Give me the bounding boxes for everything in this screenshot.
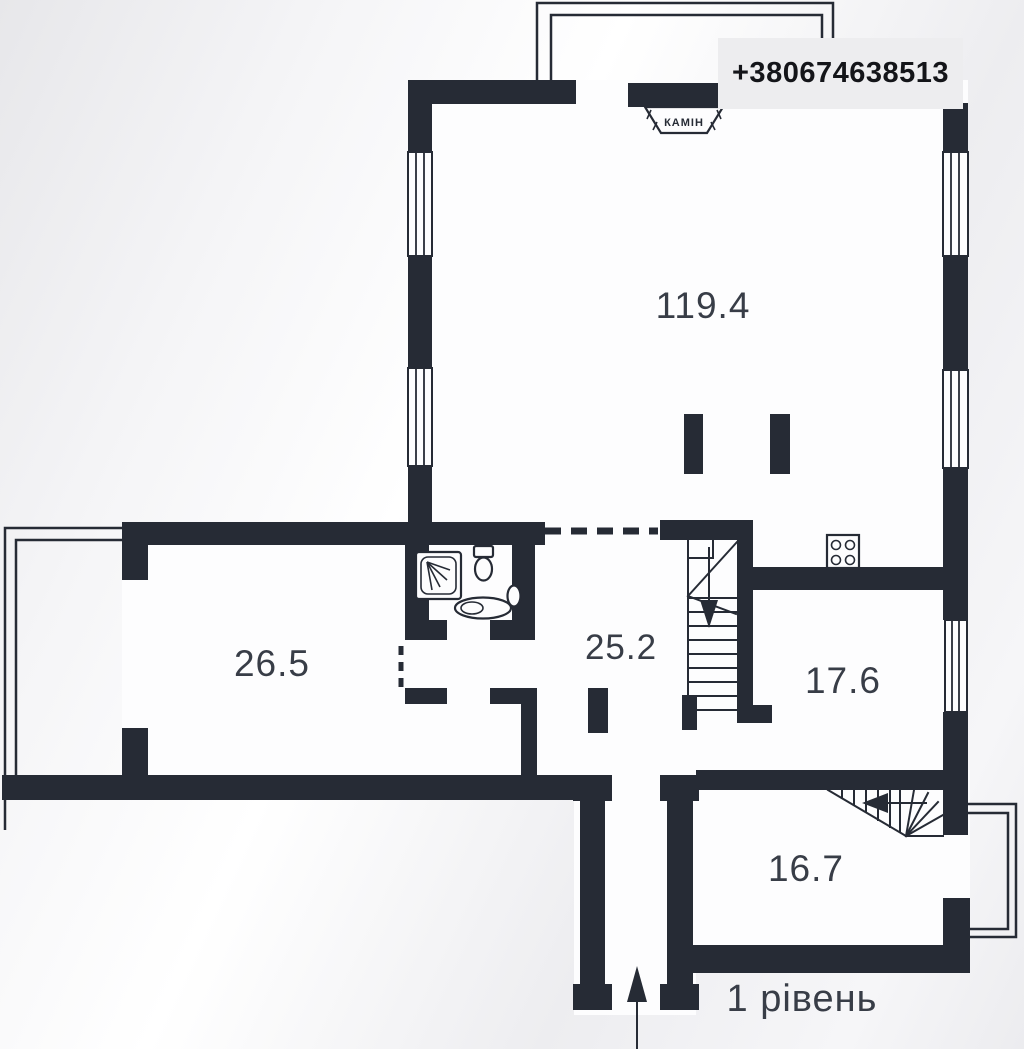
floor-plan-svg: КАМІН [0,0,1024,1049]
stove-icon [827,535,859,568]
window-symbol [408,152,432,256]
window-symbol [943,152,968,256]
toilet-icon [474,546,493,581]
sink-icon [455,598,511,619]
shower-icon [416,552,461,599]
washbasin-icon [508,586,521,607]
room-area-left-room: 26.5 [234,643,310,684]
window-symbol [945,620,967,712]
room-area-hall: 25.2 [585,628,657,667]
room-area-living-room: 119.4 [656,285,751,326]
room-area-lower-room: 16.7 [768,848,844,889]
phone-number-text: +380674638513 [732,57,949,90]
room-area-right-room: 17.6 [805,660,881,701]
balcony-outline-right [968,804,1016,937]
fireplace-label: КАМІН [664,117,704,129]
level-label: 1 рівень [727,978,878,1020]
window-symbol [943,370,968,468]
phone-number-badge: +380674638513 [718,38,963,109]
window-symbol [408,368,432,466]
floor-plan-canvas: КАМІН [0,0,1024,1049]
